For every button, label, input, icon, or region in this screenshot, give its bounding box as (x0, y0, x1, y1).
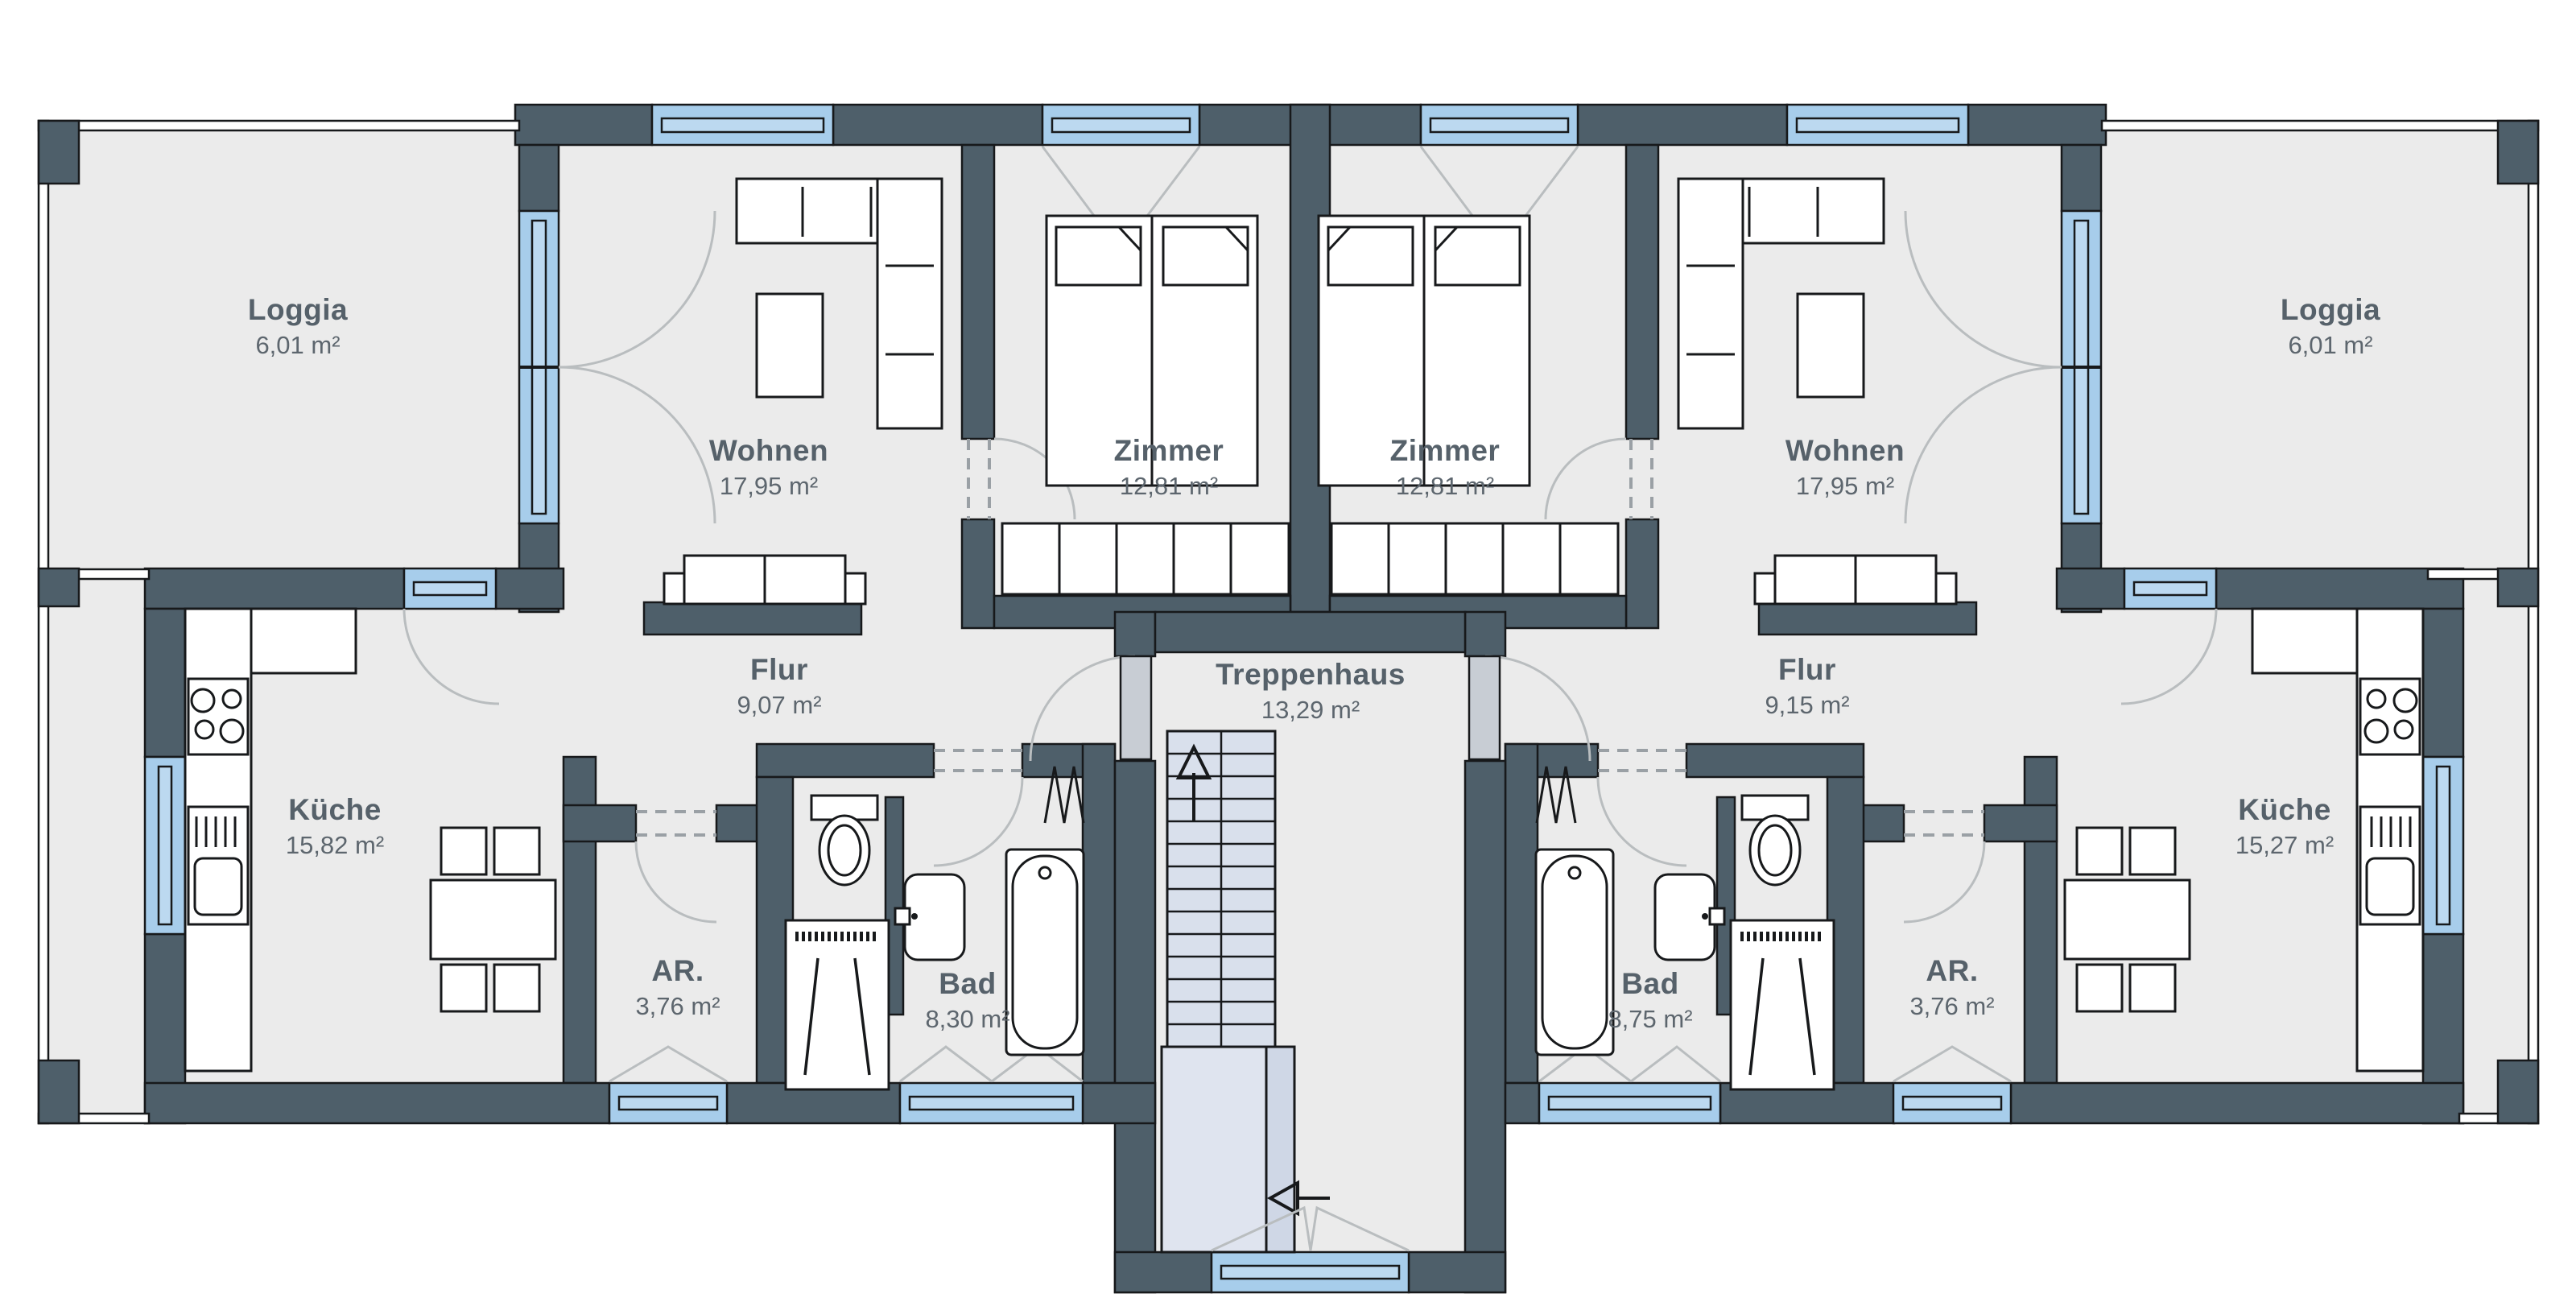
room-label-kueche-left: Küche15,82 m² (286, 791, 384, 862)
room-label-bad-right: Bad8,75 m² (1608, 965, 1692, 1036)
room-label-bad-left: Bad8,30 m² (925, 965, 1009, 1036)
wardrobe-right (1331, 523, 1618, 594)
room-label-flur-right: Flur9,15 m² (1765, 651, 1849, 721)
sideboard-right (1755, 556, 1956, 604)
room-label-ar-left: AR.3,76 m² (635, 952, 720, 1023)
room-label-flur-left: Flur9,07 m² (737, 651, 821, 721)
floor-plan: Loggia6,01 m² Wohnen17,95 m² Zimmer12,81… (0, 0, 2576, 1298)
sideboard-left (664, 556, 865, 604)
room-label-loggia-left: Loggia6,01 m² (248, 291, 348, 362)
room-label-treppenhaus: Treppenhaus13,29 m² (1216, 655, 1406, 726)
room-label-zimmer-left: Zimmer12,81 m² (1114, 432, 1224, 502)
room-label-kueche-right: Küche15,27 m² (2235, 791, 2334, 862)
wardrobe-left (1002, 523, 1289, 594)
room-label-ar-right: AR.3,76 m² (1909, 952, 1994, 1023)
room-label-wohnen-left: Wohnen17,95 m² (709, 432, 828, 502)
room-label-zimmer-right: Zimmer12,81 m² (1390, 432, 1501, 502)
room-label-wohnen-right: Wohnen17,95 m² (1785, 432, 1905, 502)
room-label-loggia-right: Loggia6,01 m² (2281, 291, 2380, 362)
floor-plan-drawing (0, 0, 2576, 1298)
